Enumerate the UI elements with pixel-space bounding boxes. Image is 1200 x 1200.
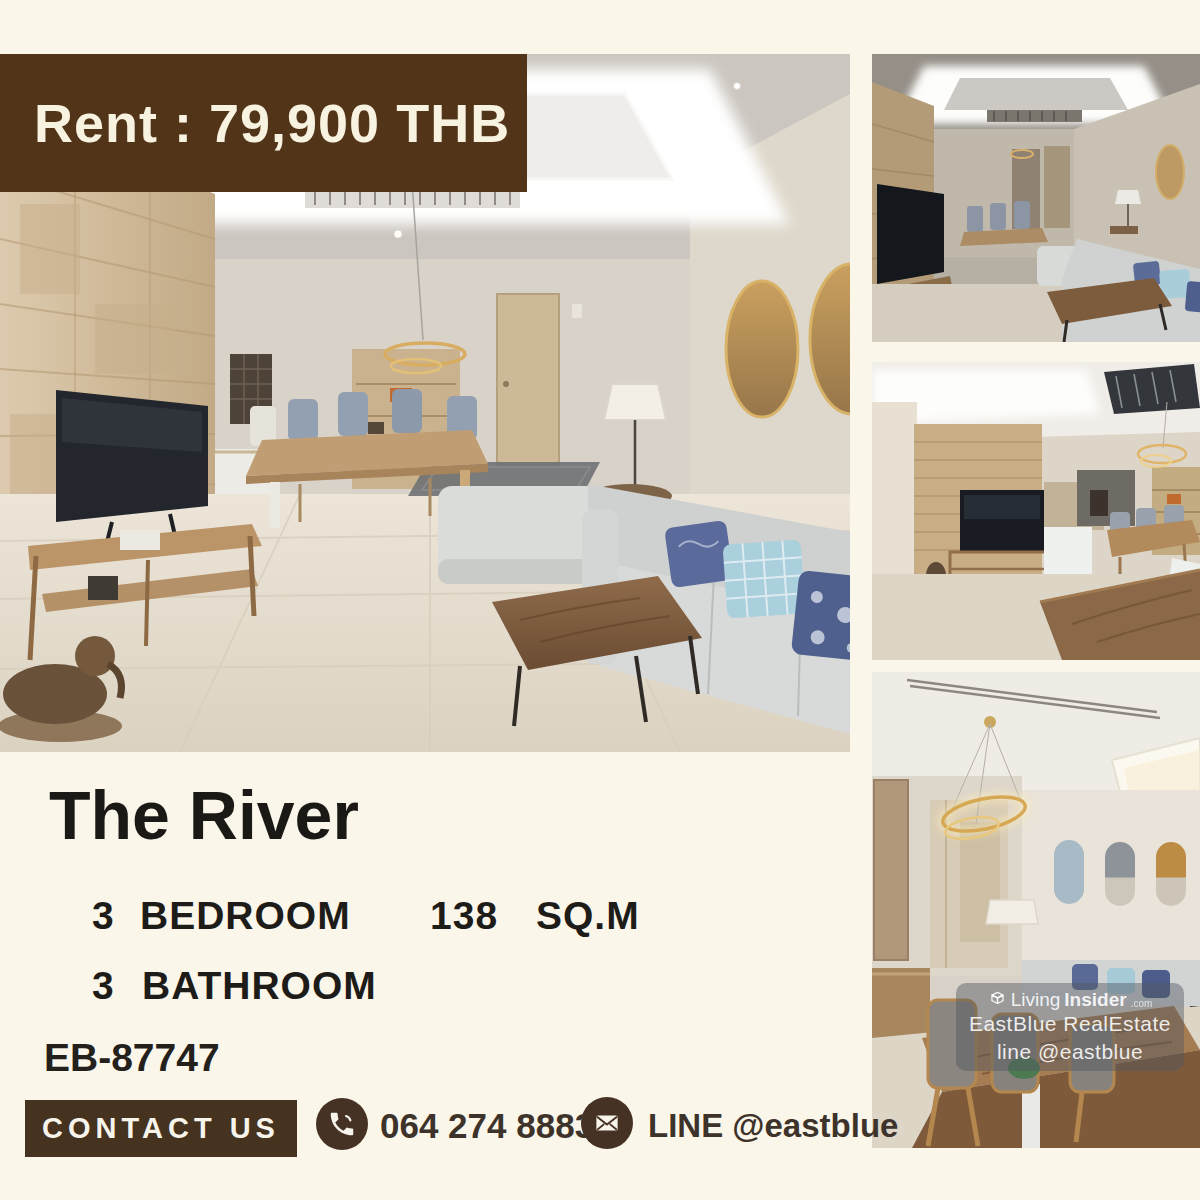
dining-room-illustration xyxy=(872,672,1200,1148)
watermark-brand-domain: .com xyxy=(1131,999,1153,1009)
watermark-brand-insider: Insider xyxy=(1064,990,1126,1009)
watermark-brand: LivingInsider.com xyxy=(988,990,1153,1009)
area-unit: SQ.M xyxy=(536,894,640,938)
rent-price-label: Rent : 79,900 THB xyxy=(34,92,510,154)
pill-mirrors xyxy=(1054,840,1186,906)
bathroom-count: 3 xyxy=(92,964,115,1008)
cube-logo-icon xyxy=(988,990,1007,1009)
bathroom-label: BATHROOM xyxy=(142,964,377,1008)
property-title: The River xyxy=(49,776,359,854)
watermark-agency: EastBlue RealEstate xyxy=(969,1012,1171,1036)
line-id[interactable]: LINE @eastblue xyxy=(648,1107,898,1145)
phone-handset-icon xyxy=(327,1109,357,1139)
rent-price-banner: Rent : 79,900 THB xyxy=(0,54,527,192)
watermark-brand-living: Living xyxy=(1011,990,1061,1009)
envelope-icon[interactable] xyxy=(581,1097,633,1149)
watermark-agency-line: line @eastblue xyxy=(997,1040,1143,1064)
area-value: 138 xyxy=(430,894,498,938)
contact-us-label: CONTACT US xyxy=(42,1112,280,1145)
real-estate-flyer: LivingInsider.com EastBlue RealEstate li… xyxy=(0,0,1200,1200)
bedroom-count: 3 xyxy=(92,894,115,938)
living-room-angle-illustration xyxy=(872,54,1200,342)
photo-tv-dining-area xyxy=(872,362,1200,660)
reference-code: EB-87747 xyxy=(44,1036,220,1080)
phone-number[interactable]: 064 274 8883 xyxy=(380,1106,594,1146)
phone-icon[interactable] xyxy=(316,1098,368,1150)
tv-dining-illustration xyxy=(872,362,1200,660)
oval-mirror xyxy=(726,281,798,417)
photo-dining-room: LivingInsider.com EastBlue RealEstate li… xyxy=(872,672,1200,1148)
photo-living-room-angle xyxy=(872,54,1200,342)
contact-us-button[interactable]: CONTACT US xyxy=(25,1100,297,1157)
watermark: LivingInsider.com EastBlue RealEstate li… xyxy=(956,983,1184,1071)
envelope-glyph xyxy=(592,1108,622,1138)
bedroom-label: BEDROOM xyxy=(140,894,351,938)
